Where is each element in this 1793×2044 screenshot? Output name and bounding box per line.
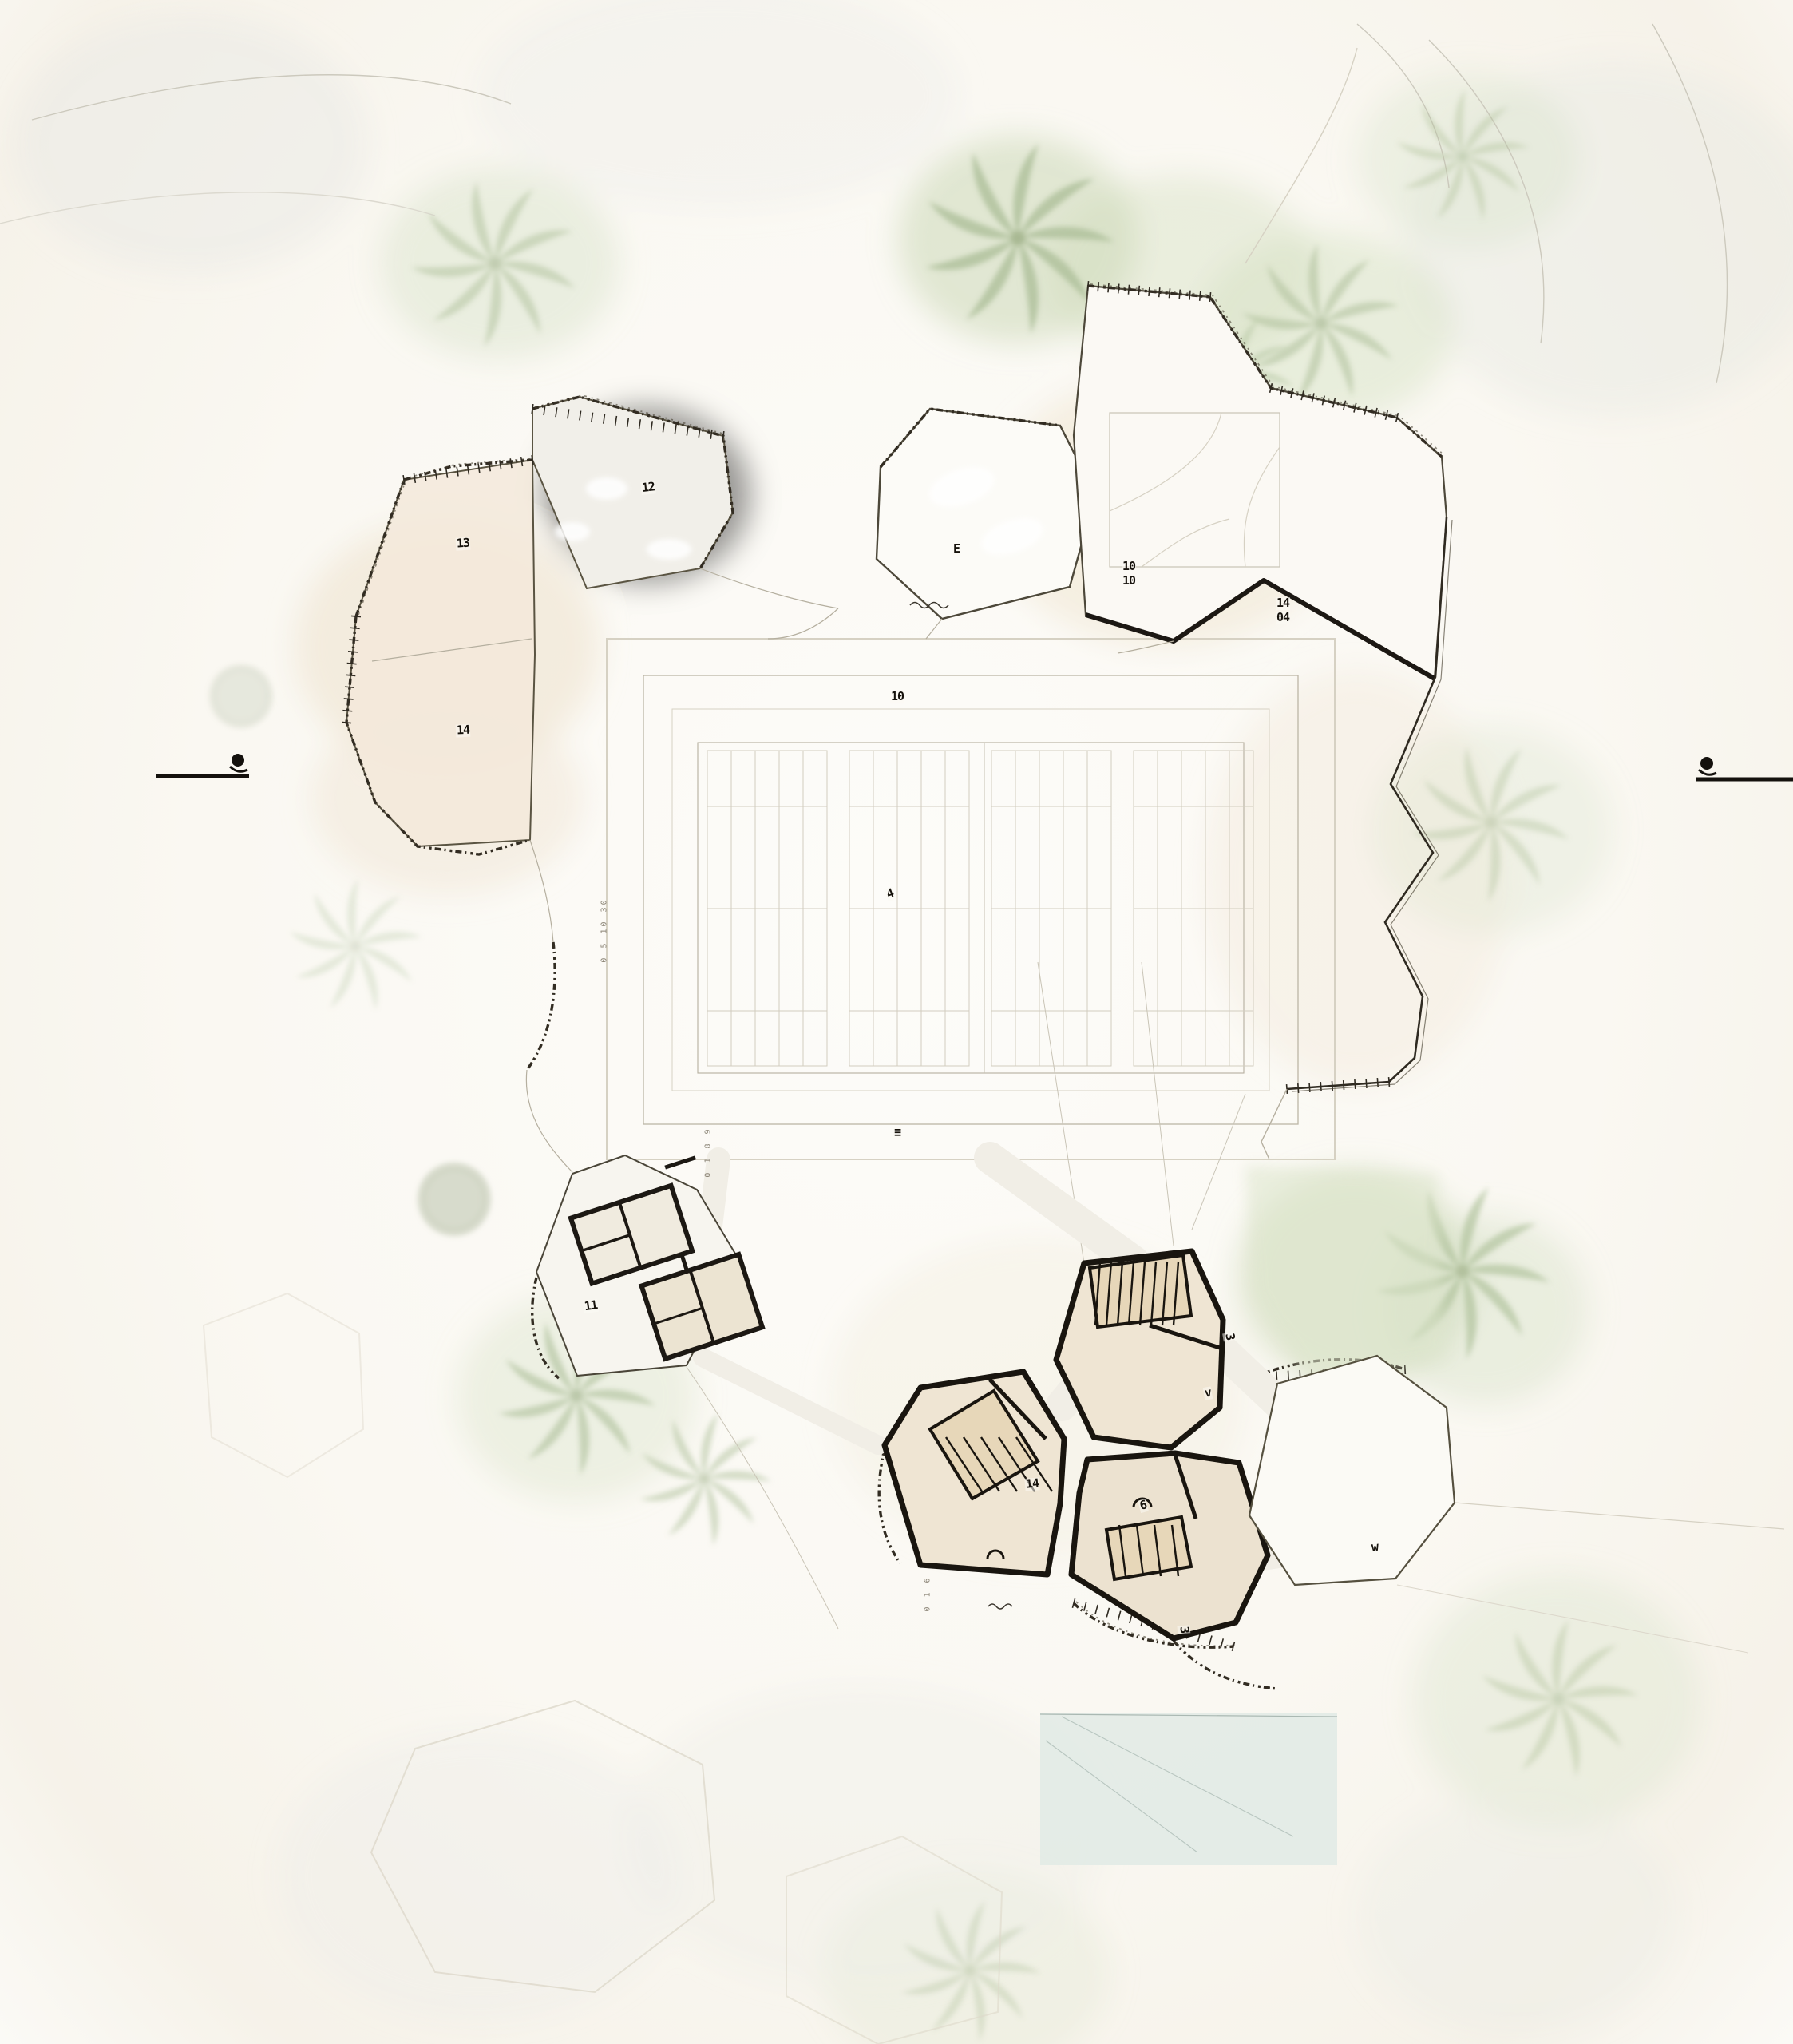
- building-lower-left: [536, 1154, 762, 1376]
- section-cut-marker: [1696, 757, 1793, 779]
- pond: [1040, 1713, 1337, 1865]
- round-tree-icon: [209, 664, 273, 728]
- site-plan-canvas: 131214E10101404104≡113v146w30 5 10 300 1…: [0, 0, 1793, 2044]
- pavilion-top-middle: [877, 409, 1095, 619]
- site-plan-drawing: [0, 0, 1793, 2044]
- section-cut-marker: [156, 754, 249, 776]
- watercolor-washes: [16, 0, 1793, 2044]
- round-tree-icon: [418, 1163, 491, 1236]
